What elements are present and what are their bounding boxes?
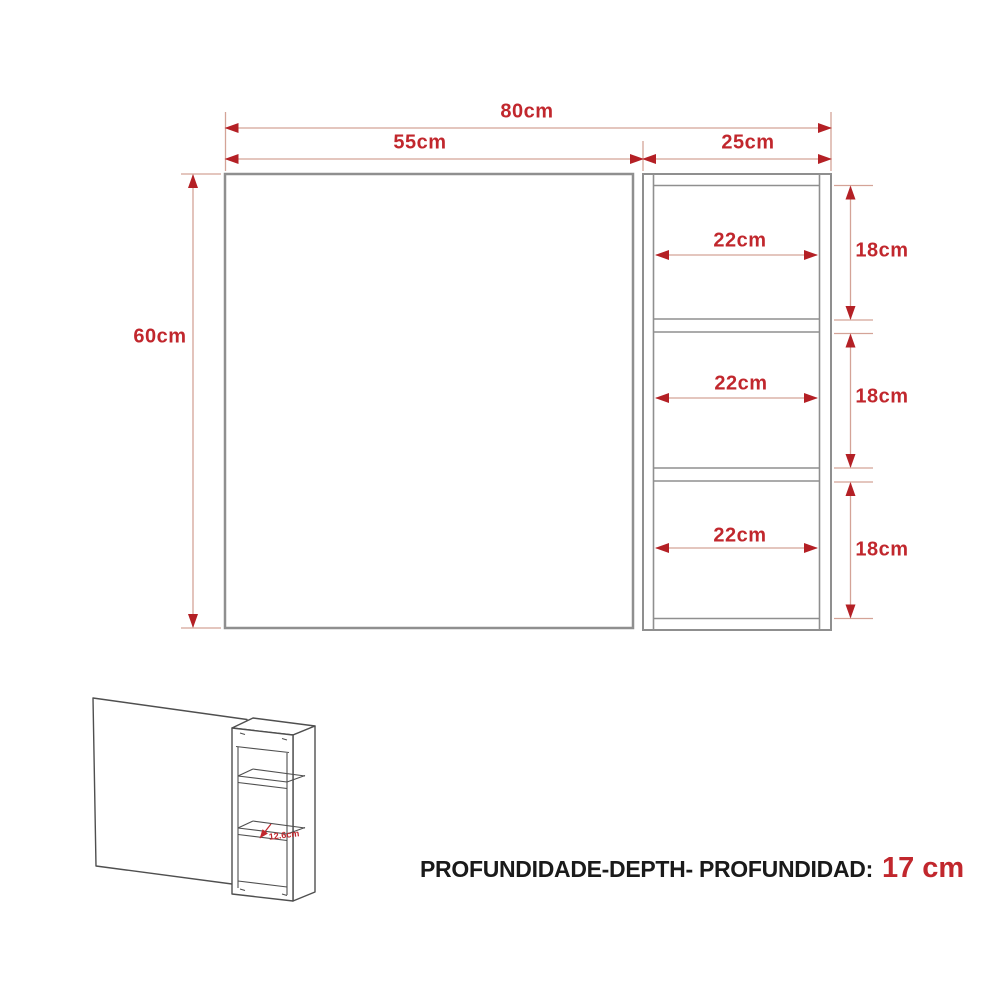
front-view-mirror-panel: [225, 174, 633, 628]
technical-drawing-page: 80cm 55cm 25cm 60cm 22cm 22cm 22cm 18cm …: [0, 0, 1000, 1000]
sketch-shelf-side-face: [293, 726, 315, 901]
dim-label-opening-width-1: 22cm: [713, 230, 766, 253]
sketch-shelf-front-face: [232, 728, 293, 901]
dim-label-shelf-width: 25cm: [721, 132, 774, 155]
technical-drawing-canvas: [0, 0, 1000, 1000]
depth-note-value: 17 cm: [882, 852, 964, 885]
dim-label-opening-height-2: 18cm: [855, 386, 908, 409]
dim-label-opening-height-1: 18cm: [855, 240, 908, 263]
depth-note-label: PROFUNDIDADE-DEPTH- PROFUNDIDAD:: [420, 856, 873, 883]
sketch-mirror-panel: [93, 698, 247, 886]
dim-label-mirror-width: 55cm: [393, 132, 446, 155]
dim-label-opening-height-3: 18cm: [855, 539, 908, 562]
depth-note: PROFUNDIDADE-DEPTH- PROFUNDIDAD: 17 cm: [420, 852, 964, 885]
dim-label-total-width: 80cm: [500, 101, 553, 124]
dim-label-height: 60cm: [133, 326, 186, 349]
dim-label-opening-width-2: 22cm: [714, 373, 767, 396]
dim-label-opening-width-3: 22cm: [713, 525, 766, 548]
perspective-sketch: [93, 698, 315, 901]
